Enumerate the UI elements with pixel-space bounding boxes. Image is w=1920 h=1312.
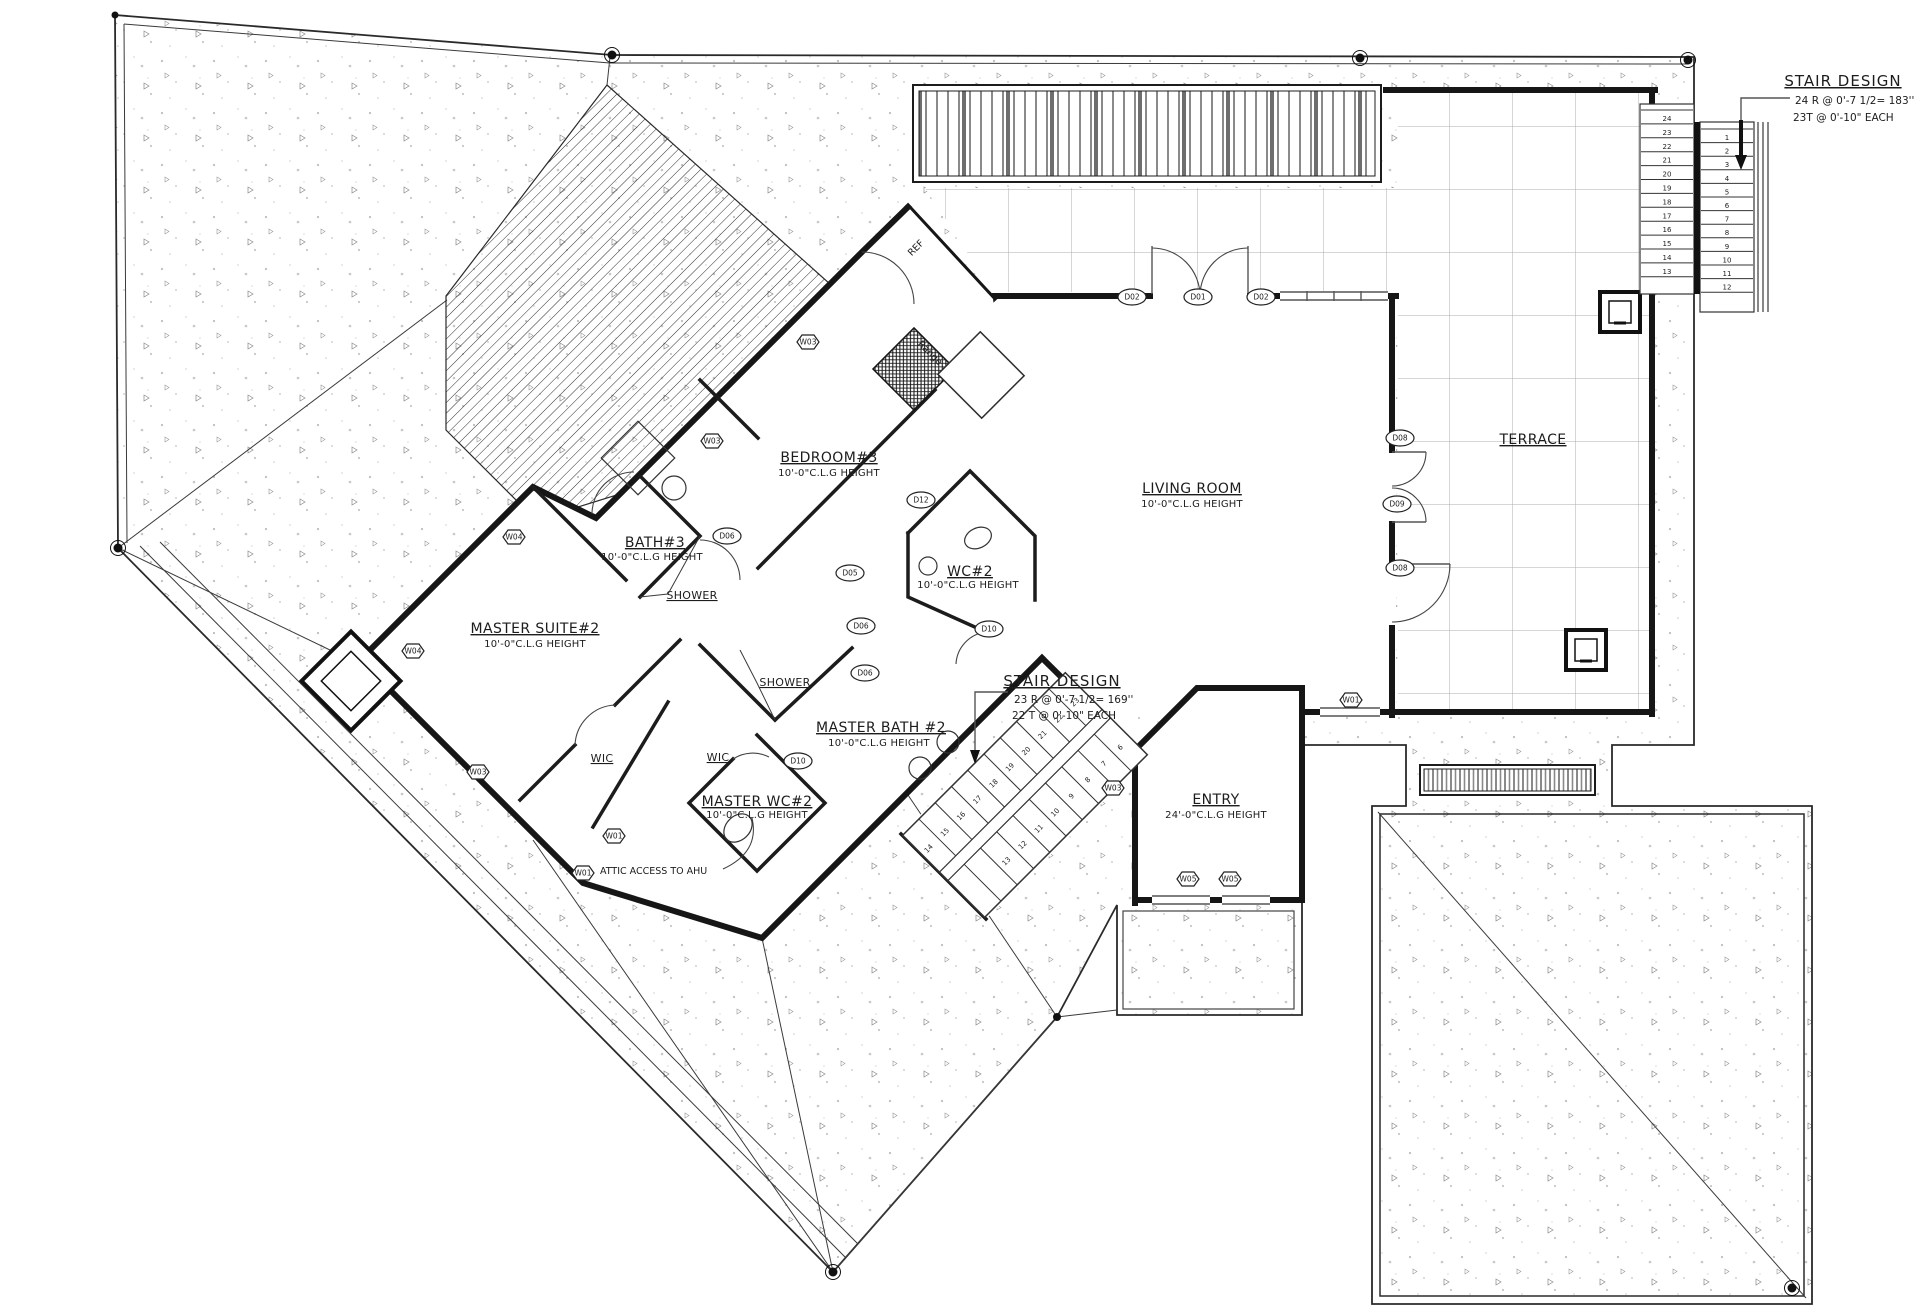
window-tag: W05 <box>1222 875 1239 884</box>
stair-design-main-note1: 23 R @ 0'-7 1/2= 169'' <box>1014 694 1133 706</box>
door-tag: D06 <box>853 622 869 631</box>
svg-text:7: 7 <box>1725 216 1729 224</box>
svg-text:19: 19 <box>1663 185 1672 193</box>
stair-design-main-note2: 22 T @ 0'-10" EACH <box>1012 710 1116 722</box>
room-label-master-wc: MASTER WC#2 <box>702 794 813 810</box>
svg-text:1: 1 <box>1725 134 1729 142</box>
stair-design-upper-note1: 24 R @ 0'-7 1/2= 183'' <box>1795 95 1914 107</box>
window-tag: W03 <box>704 437 721 446</box>
terrace-chimney-2 <box>1566 630 1606 670</box>
window-tag: W04 <box>405 647 422 656</box>
bottom-vent <box>1420 765 1595 795</box>
stair-design-upper: STAIR DESIGN 24 R @ 0'-7 1/2= 183'' 23T … <box>1784 72 1914 124</box>
svg-text:3: 3 <box>1725 161 1729 169</box>
svg-text:2: 2 <box>1725 148 1729 156</box>
door-tag: D09 <box>1389 500 1405 509</box>
svg-text:13: 13 <box>1663 268 1672 276</box>
room-height-living: 10'-0"C.L.G HEIGHT <box>1141 499 1243 510</box>
room-label-master-suite: MASTER SUITE#2 <box>470 621 599 637</box>
stair-design-main-title: STAIR DESIGN <box>1003 672 1120 690</box>
upper-stair: 242322212019181716151413 123456789101112 <box>1640 98 1790 312</box>
door-tag: D02 <box>1124 293 1140 302</box>
svg-text:14: 14 <box>1663 254 1672 262</box>
svg-text:10: 10 <box>1723 256 1732 264</box>
terrace-chimney-1 <box>1600 292 1640 332</box>
room-height-bedroom3: 10'-0"C.L.G HEIGHT <box>778 468 880 479</box>
room-height-master-suite: 10'-0"C.L.G HEIGHT <box>484 639 586 650</box>
door-tag: D12 <box>913 496 929 505</box>
window-tag: W04 <box>506 533 523 542</box>
svg-text:9: 9 <box>1725 243 1729 251</box>
stair-design-upper-title: STAIR DESIGN <box>1784 72 1901 90</box>
door-tag: D02 <box>1253 293 1269 302</box>
svg-text:20: 20 <box>1663 171 1672 179</box>
room-height-wc2: 10'-0"C.L.G HEIGHT <box>917 580 1019 591</box>
door-tag: D08 <box>1392 564 1408 573</box>
svg-text:6: 6 <box>1725 202 1730 210</box>
window-tag: W01 <box>1343 696 1360 705</box>
room-height-master-bath: 10'-0"C.L.G HEIGHT <box>828 738 930 749</box>
door-tag: D01 <box>1190 293 1206 302</box>
room-label-shower-lower: SHOWER <box>759 676 810 689</box>
svg-text:17: 17 <box>1663 212 1672 220</box>
window-tag: W03 <box>470 768 487 777</box>
door-tag: D10 <box>981 625 997 634</box>
svg-text:22: 22 <box>1663 143 1672 151</box>
room-label-bath3: BATH#3 <box>625 535 685 551</box>
room-label-master-bath: MASTER BATH #2 <box>816 720 946 736</box>
svg-text:23: 23 <box>1663 129 1672 137</box>
door-tag: D06 <box>857 669 873 678</box>
door-tag: D06 <box>719 532 735 541</box>
room-label-wc2: WC#2 <box>947 564 993 580</box>
svg-text:8: 8 <box>1725 229 1729 237</box>
svg-text:21: 21 <box>1663 157 1672 165</box>
room-label-wic-right: WIC <box>707 751 730 764</box>
room-label-bedroom3: BEDROOM#3 <box>780 450 877 466</box>
svg-text:11: 11 <box>1723 270 1732 278</box>
window-tag: W05 <box>1180 875 1197 884</box>
room-label-terrace: TERRACE <box>1498 432 1566 448</box>
window-tag: W01 <box>606 832 623 841</box>
svg-text:18: 18 <box>1663 198 1672 206</box>
room-label-wic-left: WIC <box>591 752 614 765</box>
room-label-entry: ENTRY <box>1192 792 1239 808</box>
floor-plan-sheet: TERRACE LIVING ROOM 10'-0"C.L.G HEIGHT <box>0 0 1920 1312</box>
window-tag: W03 <box>800 338 817 347</box>
svg-text:4: 4 <box>1725 175 1730 183</box>
room-height-entry: 24'-0"C.L.G HEIGHT <box>1165 810 1267 821</box>
door-tag: D08 <box>1392 434 1408 443</box>
room-label-living: LIVING ROOM <box>1142 481 1242 497</box>
window-tag: W01 <box>575 869 592 878</box>
stair-design-upper-note2: 23T @ 0'-10" EACH <box>1793 112 1894 124</box>
svg-text:12: 12 <box>1723 284 1732 292</box>
room-height-master-wc: 10'-0"C.L.G HEIGHT <box>706 810 808 821</box>
room-label-shower-upper: SHOWER <box>666 589 717 602</box>
pergola-slat-strip <box>913 85 1381 182</box>
stair-design-main: STAIR DESIGN 23 R @ 0'-7 1/2= 169'' 22 T… <box>1003 672 1133 722</box>
window-tag: W03 <box>1105 784 1122 793</box>
svg-text:24: 24 <box>1663 115 1672 123</box>
door-tag: D05 <box>842 569 858 578</box>
floor-plan-drawing: TERRACE LIVING ROOM 10'-0"C.L.G HEIGHT <box>0 0 1920 1312</box>
door-tag: D10 <box>790 757 806 766</box>
svg-text:5: 5 <box>1725 188 1729 196</box>
attic-access-label: ATTIC ACCESS TO AHU <box>600 866 707 877</box>
svg-text:16: 16 <box>1663 226 1672 234</box>
svg-text:15: 15 <box>1663 240 1672 248</box>
